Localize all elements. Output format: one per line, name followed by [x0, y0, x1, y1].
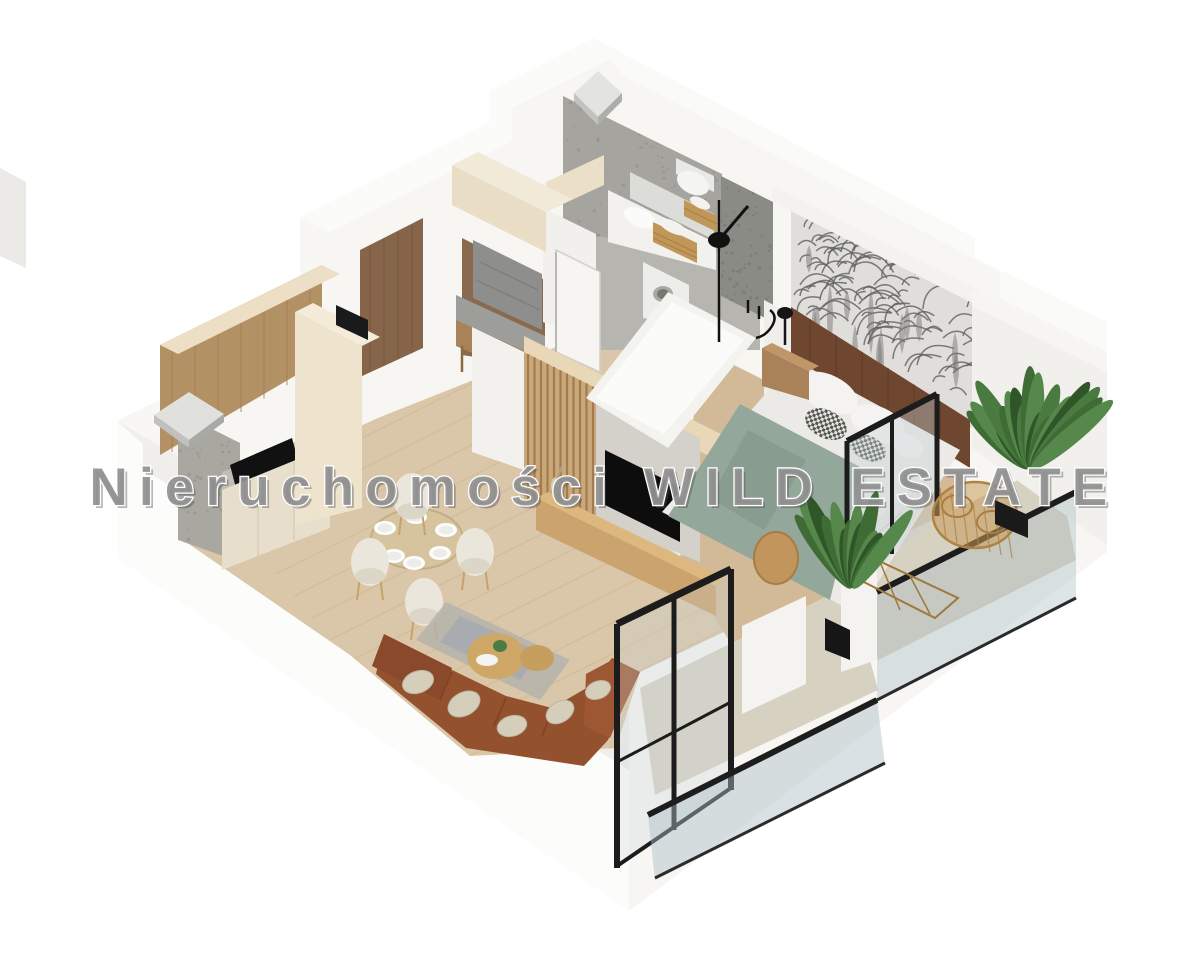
svg-text:Nieruchomości WILD ESTATE: Nieruchomości WILD ESTATE [90, 458, 1119, 517]
